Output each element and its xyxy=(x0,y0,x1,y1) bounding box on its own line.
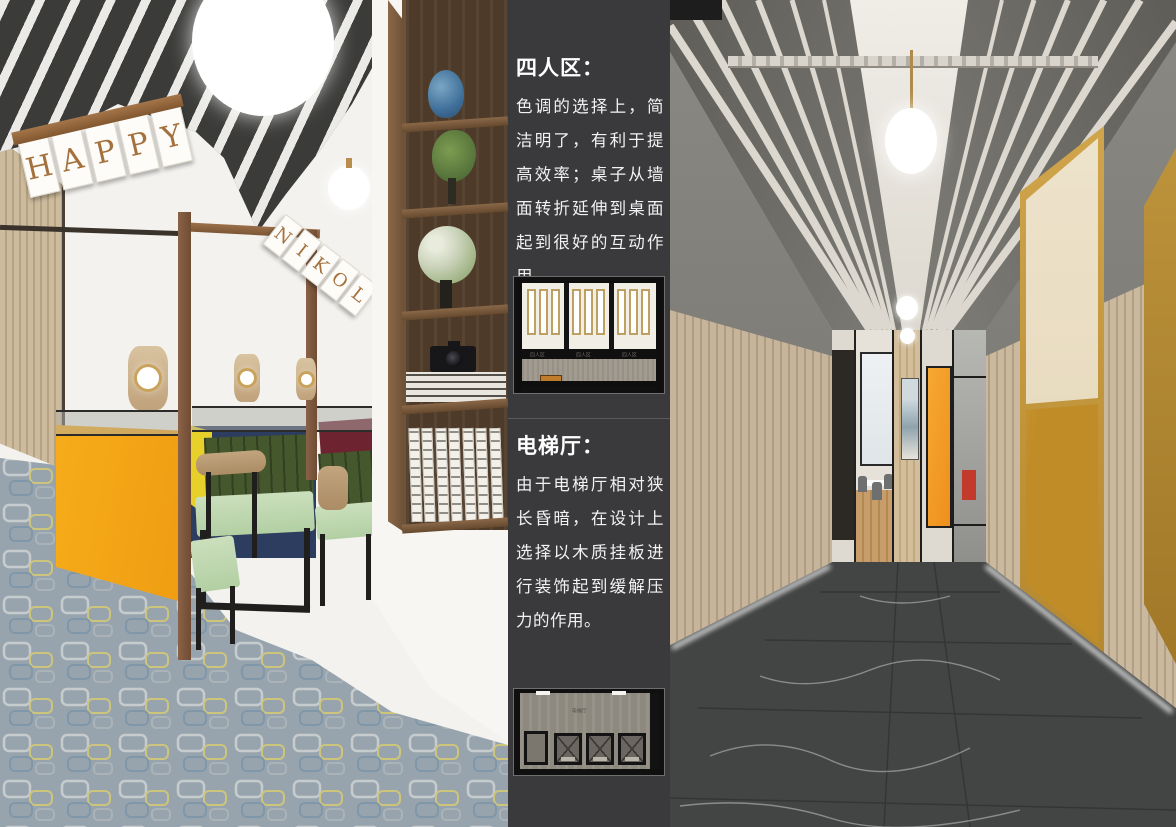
design-presentation-board: H A P P Y N I K O L xyxy=(0,0,1176,827)
plan-wall xyxy=(522,381,656,386)
blue-vase xyxy=(428,70,464,118)
pendant-sphere-light xyxy=(900,328,915,344)
floor-plan-elevator-hall: 电梯厅 xyxy=(513,688,665,776)
table-leg xyxy=(252,472,257,558)
floor-plan-four-person: 四人区 四人区 四人区 xyxy=(513,276,665,394)
plan-wall-gap xyxy=(612,691,626,695)
plan-table xyxy=(539,289,548,335)
glass-frame-line xyxy=(952,376,986,378)
book-spine xyxy=(462,428,477,522)
annotation-section-elevator: 电梯厅： 由于电梯厅相对狭长昏暗，在设计上选择以木质挂板进行装饰起到缓解压力的作… xyxy=(508,430,670,638)
nikol-letter-sign: N I K O L xyxy=(263,214,379,317)
cable-tray xyxy=(728,56,1098,68)
front-bench-leg xyxy=(196,588,201,650)
meeting-room-view xyxy=(854,328,894,566)
stacked-books xyxy=(406,372,506,402)
booth3-leg xyxy=(320,534,325,606)
pendant-oval-light xyxy=(885,108,937,174)
plan-elevator-door xyxy=(625,757,639,761)
glass-strip-front xyxy=(56,410,180,436)
pendant-sphere-light xyxy=(896,296,918,320)
plan-side-room xyxy=(524,731,548,765)
wall-lamp-plaque xyxy=(296,358,316,400)
plan-room-label: 电梯厅 xyxy=(572,707,587,714)
glass-frame-line xyxy=(952,524,986,526)
red-chair xyxy=(962,470,976,500)
annotation-panel: 四人区： 色调的选择上，简洁明了，有利于提高效率；桌子从墙面转折延伸到桌面起到很… xyxy=(508,0,670,827)
plan-table xyxy=(584,289,593,335)
section-heading: 四人区： xyxy=(508,52,670,82)
book-spine xyxy=(489,428,504,522)
plan-table xyxy=(629,289,638,335)
booth3-leg xyxy=(366,534,371,600)
chair xyxy=(858,476,867,492)
elevator-corridor-photo xyxy=(670,0,1176,827)
center-wood-column xyxy=(892,320,922,566)
meeting-room-window xyxy=(860,352,894,466)
bookshelf xyxy=(388,0,508,532)
wall-lamp-plaque xyxy=(234,354,260,402)
plan-elevator-car xyxy=(586,733,614,765)
plan-wall xyxy=(650,693,658,769)
camera xyxy=(430,346,476,372)
round-wall-lamp-icon xyxy=(137,367,159,389)
booth3-table-edge xyxy=(318,466,348,510)
plan-bay-label: 四人区 xyxy=(530,351,545,358)
plan-table xyxy=(641,289,650,335)
plan-elevator-car xyxy=(618,733,646,765)
plan-wall xyxy=(656,279,662,391)
corridor-end-partition xyxy=(826,320,986,566)
book-spine xyxy=(475,428,490,522)
plan-partition xyxy=(564,283,569,349)
plan-wall-gap xyxy=(536,691,550,695)
wood-post xyxy=(178,212,191,660)
plan-bay-label: 四人区 xyxy=(576,351,591,358)
section-heading: 电梯厅： xyxy=(508,430,670,460)
plan-wall xyxy=(516,279,522,391)
bench-leg xyxy=(304,528,310,612)
dining-area-photo: H A P P Y N I K O L xyxy=(0,0,508,827)
round-wall-lamp-icon xyxy=(301,374,312,385)
plan-elevator-door xyxy=(593,757,607,761)
wall-lamp-plaque xyxy=(128,346,168,410)
orange-glass-panel xyxy=(926,366,952,528)
pendant-sphere-light-small xyxy=(328,166,370,210)
plan-table xyxy=(551,289,560,335)
plan-table xyxy=(572,289,581,335)
front-bench-leg xyxy=(230,586,235,644)
poster xyxy=(901,378,919,460)
plan-table xyxy=(527,289,536,335)
marble-floor xyxy=(670,556,1176,827)
book-spine xyxy=(435,428,450,522)
plan-table xyxy=(596,289,605,335)
dark-ceiling-corner xyxy=(670,0,722,20)
pendant-rod xyxy=(910,50,913,110)
vertical-books xyxy=(410,428,502,522)
plan-bay-label: 四人区 xyxy=(622,351,637,358)
glass-panel-right xyxy=(952,320,986,566)
round-wall-lamp-icon xyxy=(240,371,254,385)
section-divider xyxy=(508,418,670,419)
book-spine xyxy=(449,428,464,522)
meeting-room-wood-floor xyxy=(856,490,892,566)
chair xyxy=(872,482,882,500)
annotation-section-four-person: 四人区： 色调的选择上，简洁明了，有利于提高效率；桌子从墙面转折延伸到桌面起到很… xyxy=(508,52,670,294)
plan-partition xyxy=(609,283,614,349)
plan-elevator-door xyxy=(561,757,575,761)
front-bench-cushion xyxy=(190,535,241,593)
plan-table xyxy=(617,289,626,335)
section-body: 由于电梯厅相对狭长昏暗，在设计上选择以木质挂板进行装饰起到缓解压力的作用。 xyxy=(508,468,670,638)
glass-strip-back xyxy=(192,406,372,432)
plan-elevator-car xyxy=(554,733,582,765)
section-body: 色调的选择上，简洁明了，有利于提高效率；桌子从墙面转折延伸到桌面起到很好的互动作… xyxy=(508,90,670,294)
book-spine xyxy=(422,428,437,522)
flower-bouquet xyxy=(418,226,476,284)
